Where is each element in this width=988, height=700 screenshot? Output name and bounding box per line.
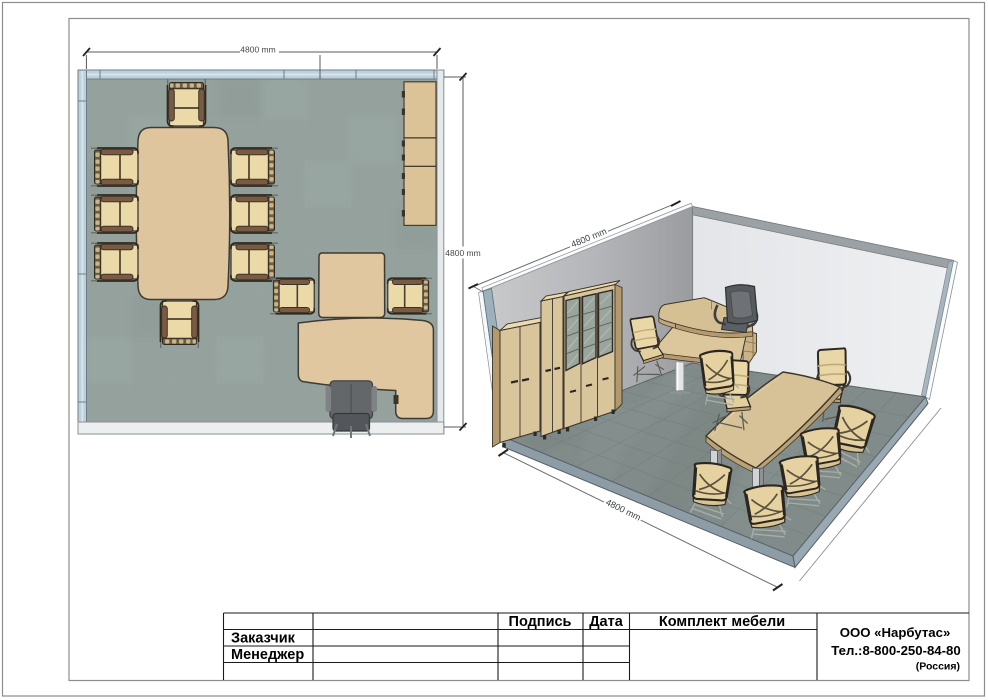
svg-text:Тел.:8-800-250-84-80: Тел.:8-800-250-84-80 (831, 643, 960, 658)
svg-text:Комплект мебели: Комплект мебели (659, 614, 785, 630)
svg-text:Подпись: Подпись (509, 614, 572, 630)
svg-text:(Россия): (Россия) (916, 661, 960, 673)
svg-text:4800 mm: 4800 mm (240, 45, 275, 55)
svg-text:Дата: Дата (589, 614, 623, 630)
svg-text:4800 mm: 4800 mm (445, 248, 480, 258)
svg-text:Менеджер: Менеджер (231, 647, 304, 663)
svg-text:ООО «Нарбутас»: ООО «Нарбутас» (840, 625, 951, 640)
svg-text:Заказчик: Заказчик (231, 631, 296, 647)
